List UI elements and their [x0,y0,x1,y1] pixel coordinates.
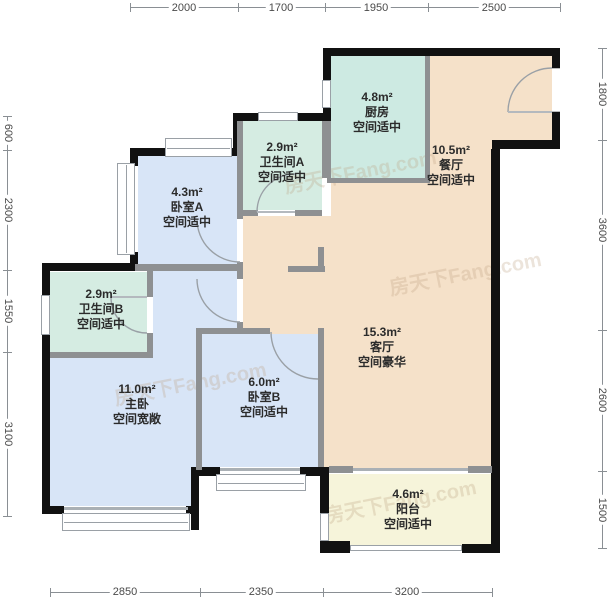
room-name: 卧室A [163,200,211,215]
room-label-dining: 10.5m² 餐厅 空间适中 [427,143,475,188]
room-label-living: 15.3m² 客厅 空间豪华 [358,325,406,370]
iwall-bath-b-bottom [50,352,153,358]
dim-tick [3,116,12,117]
iwall-bedroom-b-top [196,328,270,334]
balcony-top-line [353,468,468,471]
iwall-kitchen-bottom [327,178,430,183]
room-label-kitchen: 4.8m² 厨房 空间适中 [353,90,401,135]
dim-label-right: 1800 [596,79,608,109]
dim-tick [598,48,607,49]
room-desc: 空间宽敞 [113,412,161,427]
room-fill-dining-entry [430,56,552,145]
dim-label-top: 2000 [169,2,199,14]
room-area: 15.3m² [358,325,406,340]
wall-entry-step [492,140,560,149]
dim-tick [238,3,239,12]
wall-right-upper-a [552,56,560,68]
room-desc: 空间适中 [427,173,475,188]
dim-tick [130,3,131,12]
iwall-balcony-top-left [329,466,353,473]
room-area: 4.8m² [353,90,401,105]
room-name: 卫生间A [258,155,306,170]
room-desc: 空间适中 [163,215,211,230]
dim-tick [492,588,493,597]
wall-bath-b-top [42,263,133,271]
window-bath-b-west [41,295,50,335]
wall-west-lower [42,335,50,514]
wall-bath-a-top-left [233,113,260,121]
dim-label-bottom: 2350 [246,586,276,598]
room-name: 卧室B [240,390,288,405]
room-name: 客厅 [358,340,406,355]
bay-window-bedroom-b [216,474,306,491]
dim-label-right: 1500 [596,495,608,525]
wall-kitchen-west-top [323,48,331,80]
bay-window-master [62,513,190,531]
wall-balcony-corner-right [462,544,492,553]
dim-tick [325,3,326,12]
room-fill-living-west [243,216,331,334]
dim-tick [598,330,607,331]
dim-label-left: 1550 [2,296,14,326]
room-desc: 空间适中 [77,317,125,332]
room-name: 卫生间B [77,302,125,317]
room-label-master: 11.0m² 主卧 空间宽敞 [113,382,161,427]
entry-door-opening [552,68,560,112]
room-name: 主卧 [113,397,161,412]
room-fill-living-east [430,145,492,471]
window-bath-a-top [258,112,298,121]
dim-tick [598,471,607,472]
room-fill-master [50,358,196,506]
dim-label-top: 2500 [479,2,509,14]
window-balcony-south [350,545,462,551]
room-fill-master-link [153,332,196,358]
room-label-bath-a: 2.9m² 卫生间A 空间适中 [258,140,306,185]
room-label-balcony: 4.6m² 阳台 空间适中 [384,487,432,532]
bedroom-b-window-line [220,468,300,471]
room-label-bath-b: 2.9m² 卫生间B 空间适中 [77,287,125,332]
dim-tick [200,588,201,597]
room-name: 餐厅 [427,158,475,173]
dim-tick [598,548,607,549]
iwall-bedroom-a-bottom [135,264,240,271]
room-name: 厨房 [353,105,401,120]
dim-line-right [602,48,603,548]
dim-label-right: 3600 [596,215,608,245]
wall-bedroom-a-top [130,148,167,156]
room-label-bedroom-a: 4.3m² 卧室A 空间适中 [163,185,211,230]
room-desc: 空间适中 [353,120,401,135]
dim-tick [3,150,12,151]
dim-label-top: 1700 [266,2,296,14]
room-area: 4.6m² [384,487,432,502]
dim-tick [50,588,51,597]
iwall-bath-a-bottom-left [237,210,258,216]
room-area: 6.0m² [240,375,288,390]
floor-plan: 房天下Fang.com 房天下Fang.com 房天下Fang.com 房天下F… [0,0,609,600]
dim-tick [428,3,429,12]
room-area: 10.5m² [427,143,475,158]
room-fill-living-strip [324,334,331,471]
room-desc: 空间适中 [240,405,288,420]
dim-label-left: 600 [2,121,14,145]
dim-tick [598,140,607,141]
dim-label-left: 3100 [2,419,14,449]
dim-tick [323,588,324,597]
window-bedroom-a-west [117,163,135,255]
dim-label-bottom: 3200 [392,586,422,598]
iwall-bath-a-bottom-right [295,210,322,216]
room-area: 4.3m² [163,185,211,200]
iwall-bath-a-east [322,121,331,178]
dim-tick [3,352,12,353]
window-kitchen-west [322,80,331,108]
room-area: 2.9m² [258,140,306,155]
wall-balcony-west [320,467,329,513]
room-area: 2.9m² [77,287,125,302]
master-window-line [64,507,188,510]
room-fill-corridor [153,271,237,332]
room-desc: 空间适中 [258,170,306,185]
iwall-balcony-top-right [468,466,492,473]
wall-balcony-corner-left [320,541,350,553]
iwall-bedroom-b-west [196,332,202,470]
room-label-bedroom-b: 6.0m² 卧室B 空间适中 [240,375,288,420]
room-area: 11.0m² [113,382,161,397]
dim-tick [3,516,12,517]
iwall-bath-b-east-top [147,271,153,297]
window-balcony-west [320,513,329,541]
wall-east [491,149,500,553]
dim-tick [3,270,12,271]
wall-kitchen-west-bottom [323,108,331,121]
room-desc: 空间豪华 [358,355,406,370]
dim-label-left: 2300 [2,195,14,225]
room-name: 阳台 [384,502,432,517]
room-desc: 空间适中 [384,517,432,532]
iwall-bedroom-b-east [318,334,324,467]
dim-tick [560,3,561,12]
dim-label-bottom: 2850 [110,586,140,598]
dim-label-right: 2600 [596,385,608,415]
window-bedroom-a-top [165,138,232,157]
wall-south-step [191,467,199,530]
dim-label-top: 1950 [361,2,391,14]
wall-top [323,48,560,56]
iwall-bath-a-west [237,121,243,219]
iwall-stub-v [318,247,324,272]
